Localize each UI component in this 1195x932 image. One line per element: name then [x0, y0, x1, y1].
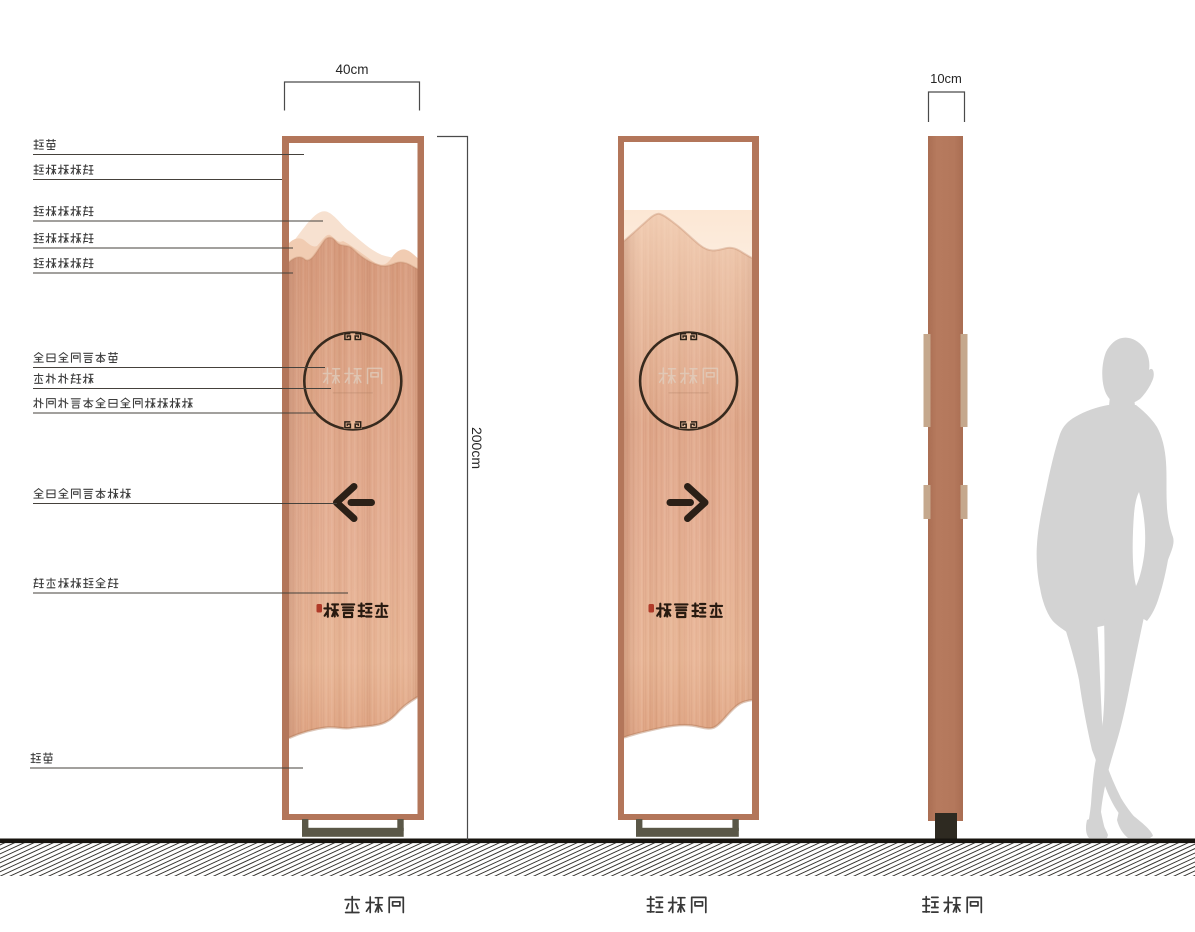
- svg-text:40cm: 40cm: [335, 62, 368, 77]
- svg-text:10cm: 10cm: [930, 71, 962, 86]
- svg-text:200cm: 200cm: [469, 427, 485, 469]
